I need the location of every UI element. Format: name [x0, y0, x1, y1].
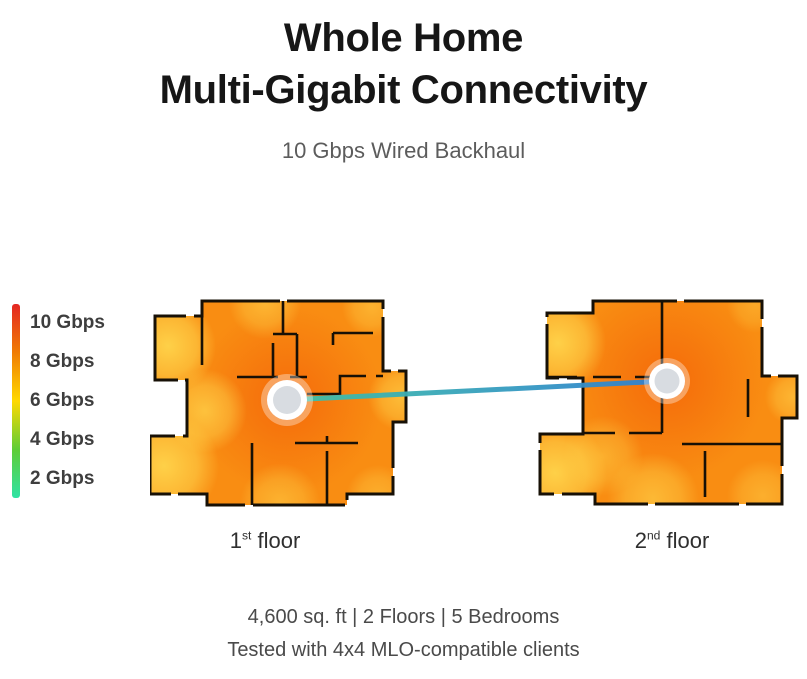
infographic-page: Whole Home Multi-Gigabit Connectivity 10…: [0, 0, 807, 679]
floor-1-ordinal: st: [242, 529, 251, 543]
title-line-2: Multi-Gigabit Connectivity: [160, 68, 648, 112]
footer-note: Tested with 4x4 MLO-compatible clients: [0, 639, 807, 662]
floor-1-word: floor: [251, 528, 300, 553]
floor-plan-1st-floor: [150, 291, 408, 507]
legend-gradient-bar: [12, 304, 20, 498]
legend-label-10gbps: 10 Gbps: [30, 304, 105, 343]
legend-label-8gbps: 8 Gbps: [30, 343, 105, 382]
subtitle: 10 Gbps Wired Backhaul: [0, 138, 807, 164]
floor-plan-2nd-floor: [533, 291, 799, 506]
floor-2-number: 2: [635, 528, 647, 553]
heatmap-floor-1: [150, 291, 408, 507]
footer-specs: 4,600 sq. ft | 2 Floors | 5 Bedrooms: [0, 606, 807, 629]
footer: 4,600 sq. ft | 2 Floors | 5 Bedrooms Tes…: [0, 606, 807, 662]
floor-2-label: 2nd floor: [602, 528, 742, 554]
legend-label-2gbps: 2 Gbps: [30, 459, 105, 498]
floor-2-word: floor: [660, 528, 709, 553]
legend-label-4gbps: 4 Gbps: [30, 420, 105, 459]
floor-2-ordinal: nd: [647, 529, 660, 543]
coverage-diagram: 10 Gbps 8 Gbps 6 Gbps 4 Gbps 2 Gbps: [0, 276, 807, 596]
legend-label-6gbps: 6 Gbps: [30, 382, 105, 421]
speed-legend: 10 Gbps 8 Gbps 6 Gbps 4 Gbps 2 Gbps: [12, 304, 105, 498]
legend-labels: 10 Gbps 8 Gbps 6 Gbps 4 Gbps 2 Gbps: [30, 304, 105, 498]
floor-1-number: 1: [230, 528, 242, 553]
heatmap-floor-2: [533, 291, 799, 506]
floor-1-label: 1st floor: [195, 528, 335, 554]
title-line-1: Whole Home: [284, 16, 523, 60]
page-title: Whole Home Multi-Gigabit Connectivity: [0, 12, 807, 116]
